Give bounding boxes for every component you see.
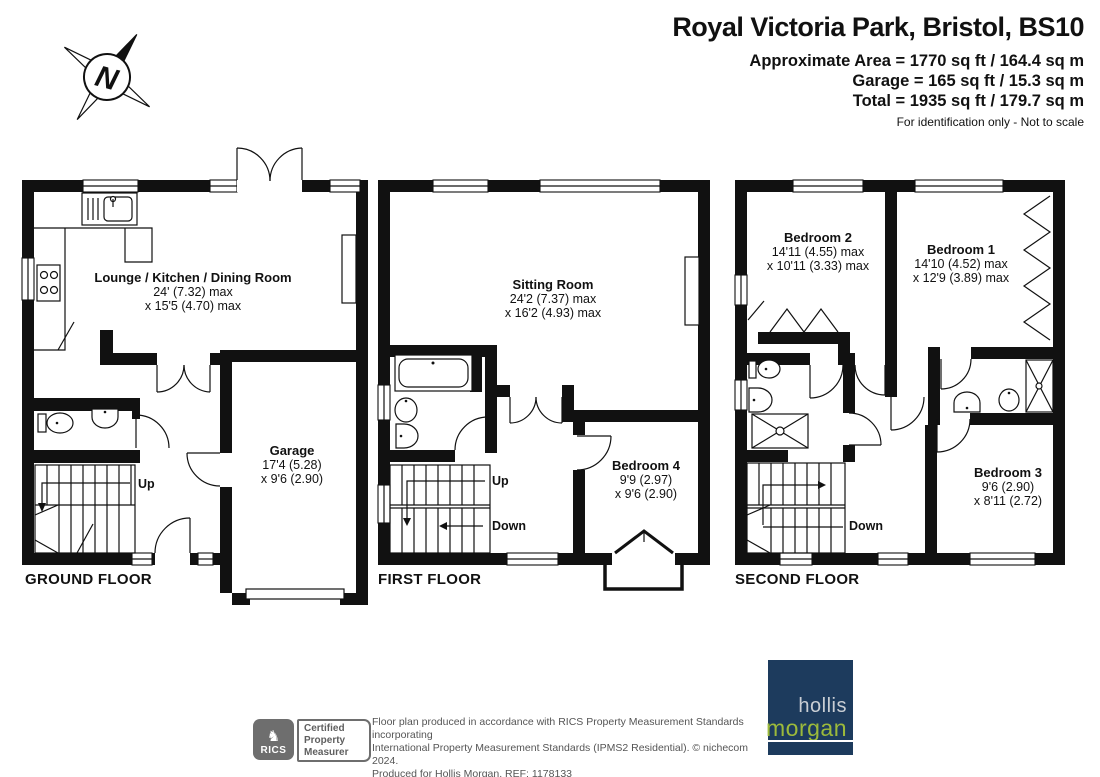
certified-property-measurer-badge: Certified Property Measurer <box>297 719 371 762</box>
logo-divider-line <box>768 740 853 743</box>
first-door-openings <box>612 553 675 565</box>
room-label-bedroom-1: Bedroom 1 14'10 (4.52) max x 12'9 (3.89)… <box>913 243 1009 285</box>
second-floor-title: SECOND FLOOR <box>735 571 859 588</box>
badge-line-1: Certified <box>304 723 366 735</box>
room-label-garage: Garage 17'4 (5.28) x 9'6 (2.90) <box>261 444 323 486</box>
rics-lion-icon: ♞ <box>267 729 280 744</box>
wc-toilet <box>38 413 73 433</box>
first-stairs <box>390 465 490 553</box>
identification-note: For identification only - Not to scale <box>672 115 1084 129</box>
disclaimer-text: Floor plan produced in accordance with R… <box>372 716 772 777</box>
room-label-lounge: Lounge / Kitchen / Dining Room 24' (7.32… <box>94 271 291 313</box>
header: Royal Victoria Park, Bristol, BS10 Appro… <box>672 12 1084 129</box>
page-title: Royal Victoria Park, Bristol, BS10 <box>672 12 1084 43</box>
room-label-bedroom-4: Bedroom 4 9'9 (2.97) x 9'6 (2.90) <box>612 459 680 501</box>
ensuite-toilet <box>999 389 1019 411</box>
room-label-bedroom-2: Bedroom 2 14'11 (4.55) max x 10'11 (3.33… <box>767 231 869 273</box>
badge-line-2: Property <box>304 735 366 747</box>
area-summary: Approximate Area = 1770 sq ft / 164.4 sq… <box>672 51 1084 111</box>
first-doors <box>455 397 611 470</box>
disclaimer-line-3: Produced for Hollis Morgan. REF: 1178133 <box>372 768 772 777</box>
showerroom-shower <box>752 414 808 448</box>
disclaimer-line-1: Floor plan produced in accordance with R… <box>372 716 772 742</box>
showerroom-toilet <box>749 360 780 378</box>
compass-icon: N <box>52 22 162 132</box>
bathroom-toilet <box>395 398 417 422</box>
ground-stairs <box>35 465 135 553</box>
wc-basin <box>92 409 118 428</box>
rics-badge: ♞ RICS <box>253 719 294 760</box>
kitchen-hob <box>37 265 60 301</box>
bathroom-basin <box>396 424 418 448</box>
ground-windows <box>22 180 360 565</box>
ground-walls <box>22 180 368 605</box>
chimney-recess-first <box>685 257 699 325</box>
garage-door <box>246 589 344 599</box>
ground-door-openings <box>155 180 340 605</box>
hollis-morgan-logo: hollis morgan <box>768 660 853 755</box>
badge-line-3: Measurer <box>304 747 366 759</box>
room-label-bedroom-3: Bedroom 3 9'6 (2.90) x 8'11 (2.72) <box>974 466 1042 508</box>
first-floor-title: FIRST FLOOR <box>378 571 481 588</box>
kitchen-sink <box>82 193 137 225</box>
hollis-morgan-wordmark: hollis morgan <box>766 696 847 740</box>
disclaimer-line-2: International Property Measurement Stand… <box>372 742 772 768</box>
first-down-label: Down <box>492 519 526 533</box>
total-area: Total = 1935 sq ft / 179.7 sq m <box>672 91 1084 111</box>
ground-floor-title: GROUND FLOOR <box>25 571 152 588</box>
ground-up-label: Up <box>138 477 155 491</box>
showerroom-basin <box>749 388 772 412</box>
approximate-area: Approximate Area = 1770 sq ft / 164.4 sq… <box>672 51 1084 71</box>
garage-area: Garage = 165 sq ft / 15.3 sq m <box>672 71 1084 91</box>
first-floor-plan <box>378 180 710 589</box>
second-down-label: Down <box>849 519 883 533</box>
second-stairs <box>747 463 845 553</box>
first-up-label: Up <box>492 474 509 488</box>
ground-floor-plan <box>22 148 368 605</box>
bedroom2-closet <box>748 301 838 332</box>
floorplan-page: N Royal Victoria Park, Bristol, BS10 App… <box>0 0 1100 777</box>
chimney-recess-ground <box>342 235 356 303</box>
bathroom-bath <box>395 355 472 391</box>
logo-morgan-text: morgan <box>766 717 847 740</box>
rics-wordmark: RICS <box>261 745 287 756</box>
ensuite-basin <box>954 392 980 412</box>
ensuite-shower <box>1026 360 1053 412</box>
room-label-sitting-room: Sitting Room 24'2 (7.37) max x 16'2 (4.9… <box>505 278 601 320</box>
wardrobe-doors <box>1024 196 1050 340</box>
logo-hollis-text: hollis <box>766 696 847 716</box>
